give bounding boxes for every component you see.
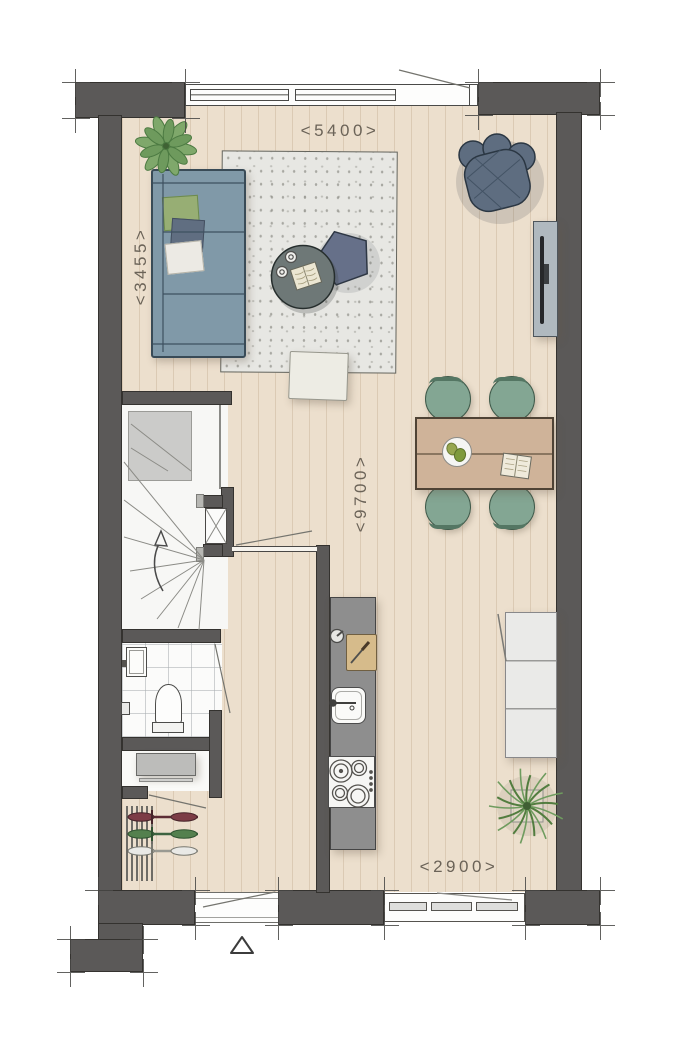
toilet-paper-holder <box>121 702 130 715</box>
dining-chair <box>489 484 535 530</box>
tv-mount <box>544 264 549 284</box>
dimension-label-center: <9700> <box>351 433 371 553</box>
wall-left <box>98 115 122 892</box>
shaft-nub-top <box>196 494 204 508</box>
chair-back <box>493 514 527 529</box>
wall-wc-bottom <box>122 737 210 751</box>
shaft-box <box>205 508 227 544</box>
dining-table <box>415 417 554 490</box>
toilet-bowl <box>155 684 182 725</box>
cooktop <box>328 756 375 808</box>
window-bottom-pane-2 <box>431 902 472 911</box>
shaft-nub-bottom <box>196 547 204 562</box>
dimension-label-top: <5400> <box>280 121 400 141</box>
window-bottom-pane-1 <box>389 902 427 911</box>
chair-back <box>429 377 463 392</box>
kitchen-sink-basin <box>335 691 362 720</box>
pouf <box>288 351 349 401</box>
dining-chair <box>489 376 535 422</box>
wall-kitchen <box>316 545 330 893</box>
wall-stair-top <box>122 391 232 405</box>
window-top-pane-right <box>295 89 396 101</box>
wall-bottom-left <box>98 890 195 925</box>
shaft-wall-top <box>203 495 223 508</box>
garden-door-jamb <box>469 84 478 106</box>
floor-plan: <5400> <3455> <9700> <2900> <box>0 0 681 1050</box>
dining-chair <box>425 484 471 530</box>
wall-stair-bottom <box>122 629 221 643</box>
wall-wc-right <box>209 710 222 798</box>
wall-bottom-right <box>525 890 600 925</box>
wall-right <box>556 112 582 892</box>
wall-closet-stub <box>122 786 148 799</box>
window-top-pane-left <box>190 89 289 101</box>
window-bottom-pane-3 <box>476 902 518 911</box>
cutting-board <box>346 634 377 671</box>
wall-bottom-center <box>278 890 384 925</box>
dining-chair <box>425 376 471 422</box>
stairwell-edge-line <box>219 405 221 489</box>
chair-back <box>493 377 527 392</box>
dimension-label-left: <3455> <box>131 206 151 326</box>
chair-back <box>429 514 463 529</box>
wall-top-right <box>478 82 600 115</box>
sofa-pillow-white <box>164 240 204 275</box>
front-door-threshold <box>195 892 278 923</box>
meter-cabinet <box>136 753 196 776</box>
wall-top-left <box>75 82 185 118</box>
dimension-label-bottom: <2900> <box>399 857 519 877</box>
wc-basin-tap <box>122 660 127 667</box>
wc-basin-inner <box>129 650 144 674</box>
toilet-cistern <box>152 722 184 733</box>
stair-upper-flight-panel <box>128 411 192 481</box>
hall-door-leaf <box>232 546 317 552</box>
rug <box>220 150 398 373</box>
wall-entrance-block <box>70 939 143 972</box>
shaft-wall-bottom <box>203 544 223 557</box>
entrance-marker-triangle <box>231 937 253 953</box>
sideboard <box>505 612 557 758</box>
meter-cabinet-shelf <box>139 778 193 782</box>
